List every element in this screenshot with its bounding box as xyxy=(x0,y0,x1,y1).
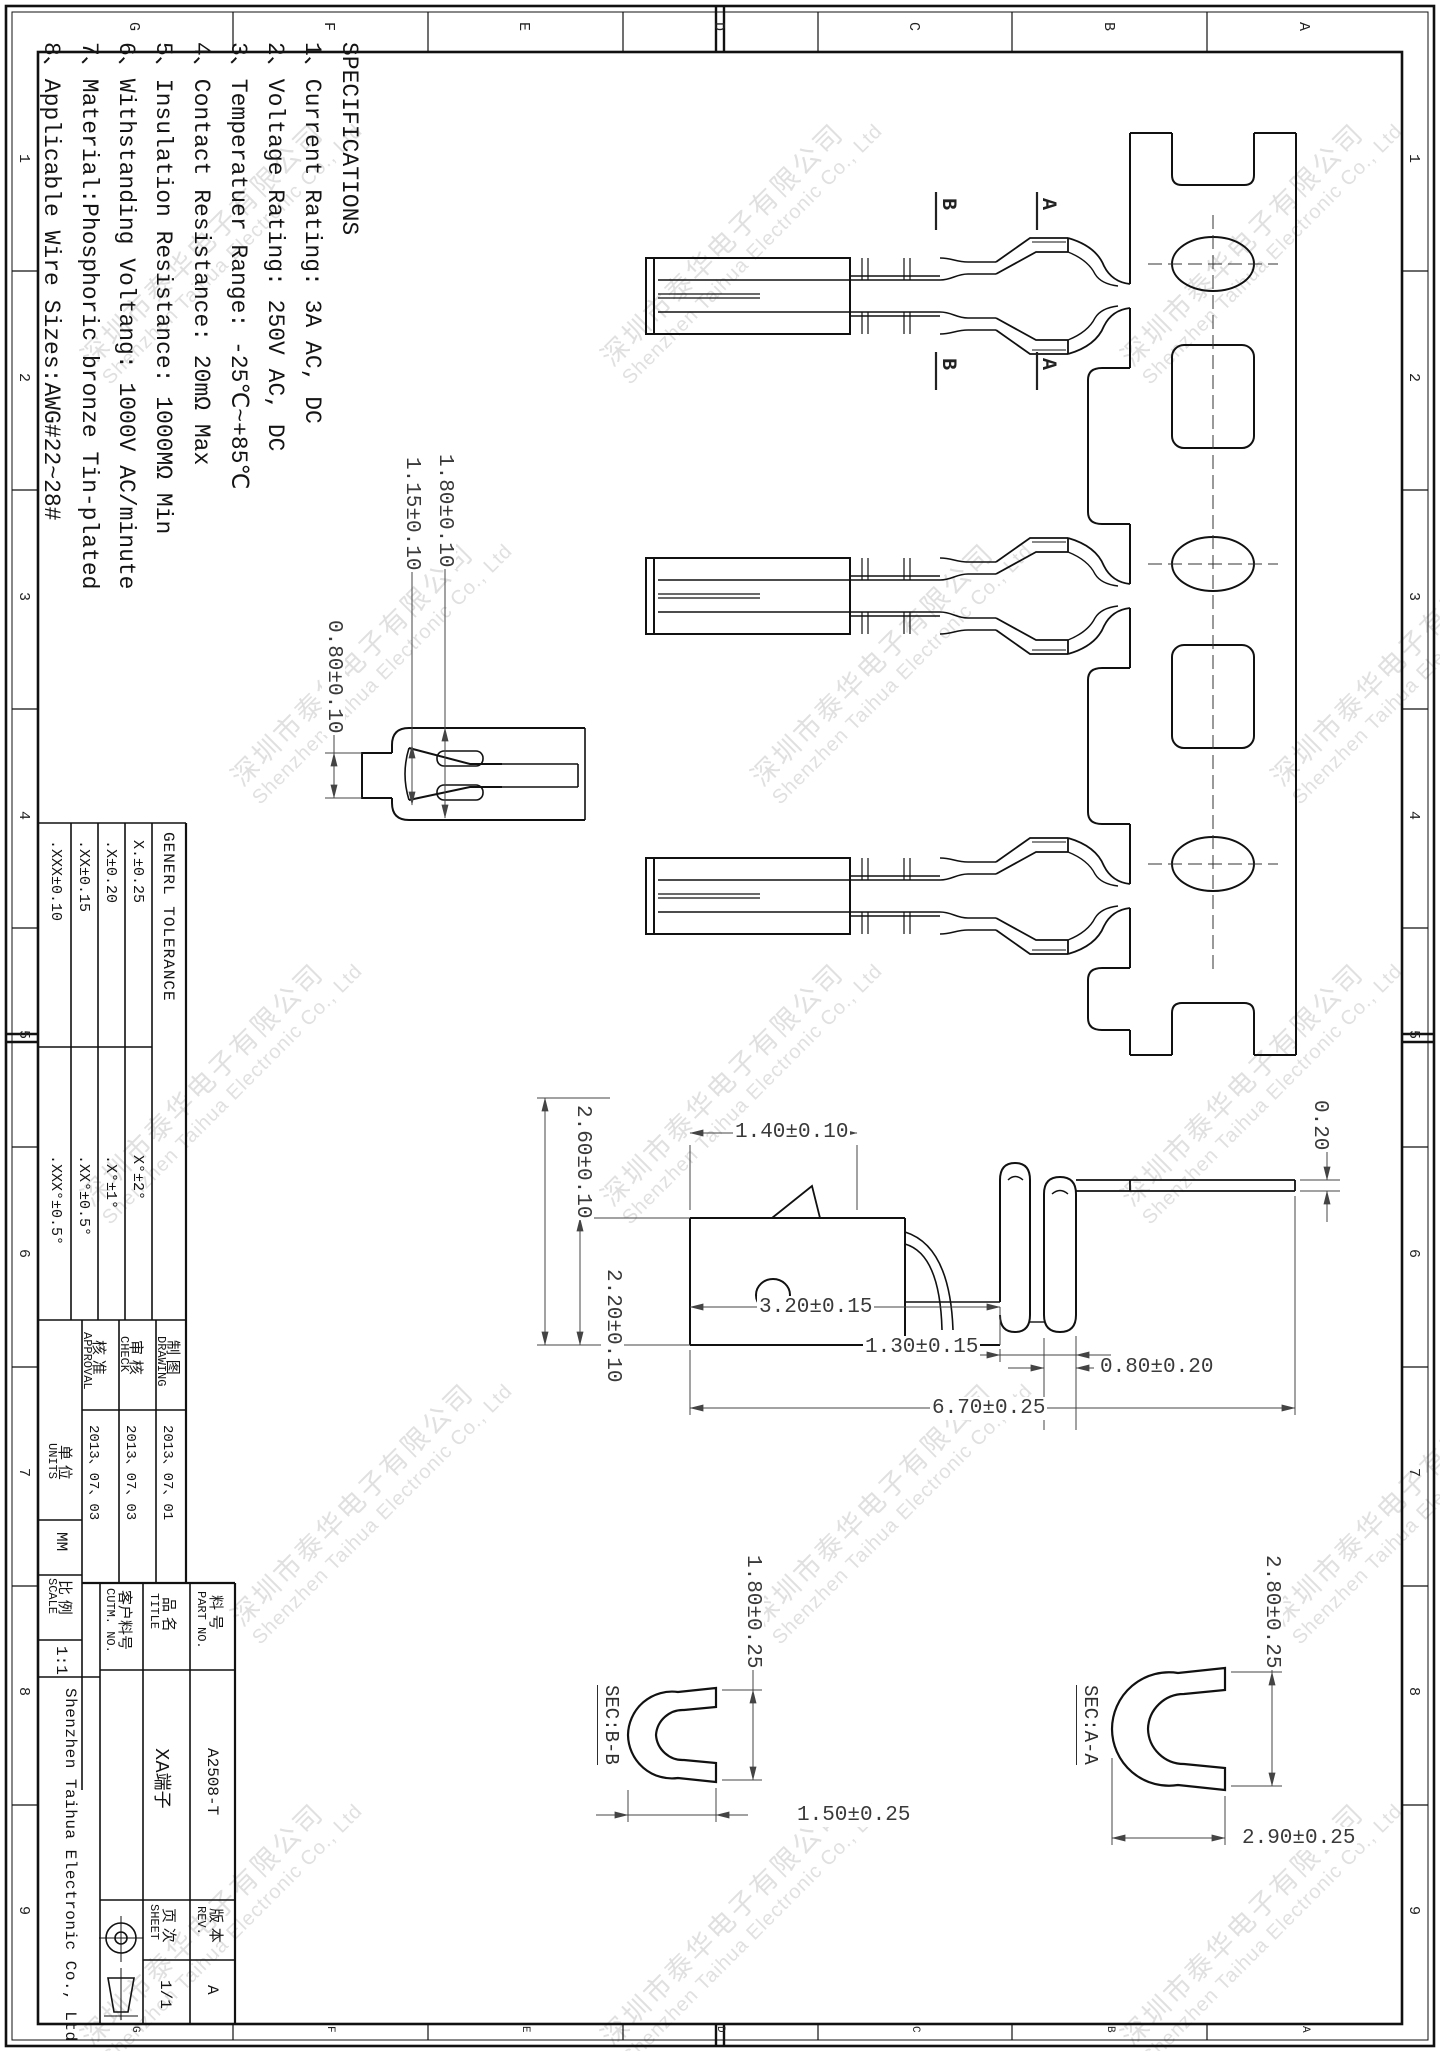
part-no-label-en: PART NO. xyxy=(194,1591,208,1649)
spec-line-4: 4、Contact Resistance: 20mΩ Max xyxy=(188,42,214,465)
terminal-3 xyxy=(646,838,1130,954)
tol-ang-1: X°±2° xyxy=(129,1155,146,1200)
zone-number-right-4: 4 xyxy=(1405,811,1422,820)
sheet-label-en: SHEET xyxy=(147,1904,161,1940)
zone-letter-bottom-E: E xyxy=(519,2026,531,2033)
zone-number-right-5: 5 xyxy=(1405,1030,1422,1039)
check-date: 2013、07、03 xyxy=(122,1425,142,1520)
tol-ang-3: .XX°±0.5° xyxy=(75,1155,92,1236)
check-label-en: CHECK xyxy=(117,1336,131,1372)
terminal-2 xyxy=(646,538,1130,654)
dim-front-slot: 0.80±0.10 xyxy=(322,618,345,735)
approval-date: 2013、07、03 xyxy=(85,1425,105,1520)
zone-letter-bottom-G: G xyxy=(129,2026,141,2033)
sec-bb-view xyxy=(628,1688,716,1782)
zone-number-left-2: 2 xyxy=(15,373,32,382)
zone-number-right-8: 8 xyxy=(1405,1687,1422,1696)
dim-side-box-h: 2.20±0.10 xyxy=(601,1267,624,1384)
section-b-label-top: B xyxy=(936,198,959,210)
title-value: XA端子 xyxy=(150,1748,176,1809)
zone-number-left-5: 5 xyxy=(15,1030,32,1039)
zone-letter-bottom-D: D xyxy=(714,2026,726,2033)
cutm-label-en: CUTM. NO. xyxy=(103,1588,117,1653)
dim-side-total: 6.70±0.25 xyxy=(930,1397,1047,1420)
spec-line-6: 6、Withstanding Voltang: 1000V AC/minute xyxy=(113,42,139,590)
dim-aa-height: 2.80±0.25 xyxy=(1260,1553,1283,1670)
zone-letter-top-D: D xyxy=(710,22,727,31)
tol-lin-1: X.±0.25 xyxy=(129,840,146,903)
units-value: MM xyxy=(52,1532,70,1551)
zone-number-left-1: 1 xyxy=(15,154,32,163)
title-label-zh: 品 名 xyxy=(159,1597,180,1632)
spec-line-8: 8、Applicable Wire Sizes:AWG#22~28# xyxy=(38,42,64,520)
zone-number-right-7: 7 xyxy=(1405,1468,1422,1477)
dim-side-thickness: 0.20 xyxy=(1308,1098,1331,1152)
dim-side-wing: 0.80±0.20 xyxy=(1098,1356,1215,1379)
section-b-label-bottom: B xyxy=(936,358,959,370)
company-name: Shenzhen Taihua Electronic Co., Ltd xyxy=(61,1688,79,2042)
dim-side-height: 2.60±0.10 xyxy=(571,1103,594,1220)
tol-lin-4: .XXX±0.10 xyxy=(47,840,64,921)
tol-ang-4: .XXX°±0.5° xyxy=(47,1155,64,1245)
section-a-label-top: A xyxy=(1036,198,1059,210)
sheet-label-zh: 页 次 xyxy=(159,1908,180,1943)
zone-letter-top-C: C xyxy=(905,22,922,31)
dimension-lines xyxy=(325,565,1340,1845)
rev-label-zh: 版 本 xyxy=(206,1908,227,1943)
projection-symbol xyxy=(99,1916,143,2020)
part-no-value: A2508-T xyxy=(203,1748,221,1815)
zone-number-left-7: 7 xyxy=(15,1468,32,1477)
zone-letter-top-E: E xyxy=(515,22,532,31)
zone-number-right-3: 3 xyxy=(1405,592,1422,601)
tol-ang-2: .X°±1° xyxy=(102,1155,119,1209)
front-view xyxy=(362,728,585,820)
zone-letter-bottom-C: C xyxy=(909,2026,921,2033)
drawing-date: 2013、07、01 xyxy=(159,1425,179,1520)
cutm-label-zh: 客户料号 xyxy=(115,1590,136,1650)
zone-number-right-1: 1 xyxy=(1405,154,1422,163)
sheet-value: 1/1 xyxy=(156,1980,174,2009)
scale-value: 1:1 xyxy=(52,1646,70,1675)
dim-front-inner: 1.15±0.10 xyxy=(400,455,423,572)
section-a-label-bottom: A xyxy=(1036,358,1059,370)
rev-label-en: REV. xyxy=(194,1906,208,1935)
zone-number-left-4: 4 xyxy=(15,811,32,820)
dim-side-lance: 1.40±0.10 xyxy=(733,1121,850,1144)
centerlines xyxy=(1148,215,1278,975)
zone-number-right-6: 6 xyxy=(1405,1249,1422,1258)
dim-bb-height: 1.80±0.25 xyxy=(741,1553,764,1670)
specs-title: SPECIFICATIONS xyxy=(336,42,362,235)
sec-aa-view xyxy=(1112,1668,1225,1790)
carrier-strip xyxy=(1088,133,1296,1055)
spec-line-5: 5、Insulation Resistance: 1000MΩ Min xyxy=(150,42,176,534)
part-no-label-zh: 料 号 xyxy=(206,1595,227,1630)
zone-number-left-6: 6 xyxy=(15,1249,32,1258)
drawing-label-en: DRAWING xyxy=(154,1336,168,1386)
sec-aa-label: SEC:A-A xyxy=(1076,1685,1101,1765)
zone-number-left-3: 3 xyxy=(15,592,32,601)
zone-number-right-9: 9 xyxy=(1405,1906,1422,1915)
spec-line-7: 7、Material:Phosphoric bronze Tin-plated xyxy=(76,42,102,590)
zone-letter-top-G: G xyxy=(125,22,142,31)
zone-letter-bottom-F: F xyxy=(324,2026,336,2033)
zone-letter-bottom-A: A xyxy=(1299,2026,1311,2033)
approval-label-en: APPROVAL xyxy=(80,1332,94,1390)
dim-side-gap: 1.30±0.15 xyxy=(863,1336,980,1359)
dim-aa-width: 2.90±0.25 xyxy=(1240,1827,1357,1850)
zone-letter-bottom-B: B xyxy=(1104,2026,1116,2033)
drawing-lines xyxy=(0,0,1440,2051)
tol-lin-2: .X±0.20 xyxy=(102,840,119,903)
dim-front-outer: 1.80±0.10 xyxy=(433,452,456,569)
title-label-en: TITLE xyxy=(147,1593,161,1629)
zone-number-right-2: 2 xyxy=(1405,373,1422,382)
spec-line-1: 1、Current Rating: 3A AC, DC xyxy=(299,42,325,424)
chain-view xyxy=(646,133,1296,1055)
units-label-en: UNITS xyxy=(45,1443,59,1479)
zone-letter-top-B: B xyxy=(1100,22,1117,31)
scale-label-en: SCALE xyxy=(45,1578,59,1614)
tol-lin-3: .XX±0.15 xyxy=(75,840,92,912)
dim-side-box-len: 3.20±0.15 xyxy=(757,1296,874,1319)
tolerance-header: GENERL TOLERANCE xyxy=(159,832,177,1002)
spec-line-2: 2、Voltage Rating: 250V AC, DC xyxy=(262,42,288,451)
spec-line-3: 3、Temperatuer Range: -25℃~+85℃ xyxy=(225,42,251,489)
zone-number-left-8: 8 xyxy=(15,1687,32,1696)
zone-letter-top-A: A xyxy=(1295,22,1312,31)
terminal-1 xyxy=(646,238,1130,354)
sec-bb-label: SEC:B-B xyxy=(597,1685,622,1765)
dim-bb-width: 1.50±0.25 xyxy=(795,1804,912,1827)
drawing-sheet: 深圳市泰华电子有限公司Shenzhen Taihua Electronic Co… xyxy=(0,0,1440,2051)
zone-number-left-9: 9 xyxy=(15,1906,32,1915)
rev-value: A xyxy=(203,1985,221,1995)
zone-letter-top-F: F xyxy=(320,22,337,31)
